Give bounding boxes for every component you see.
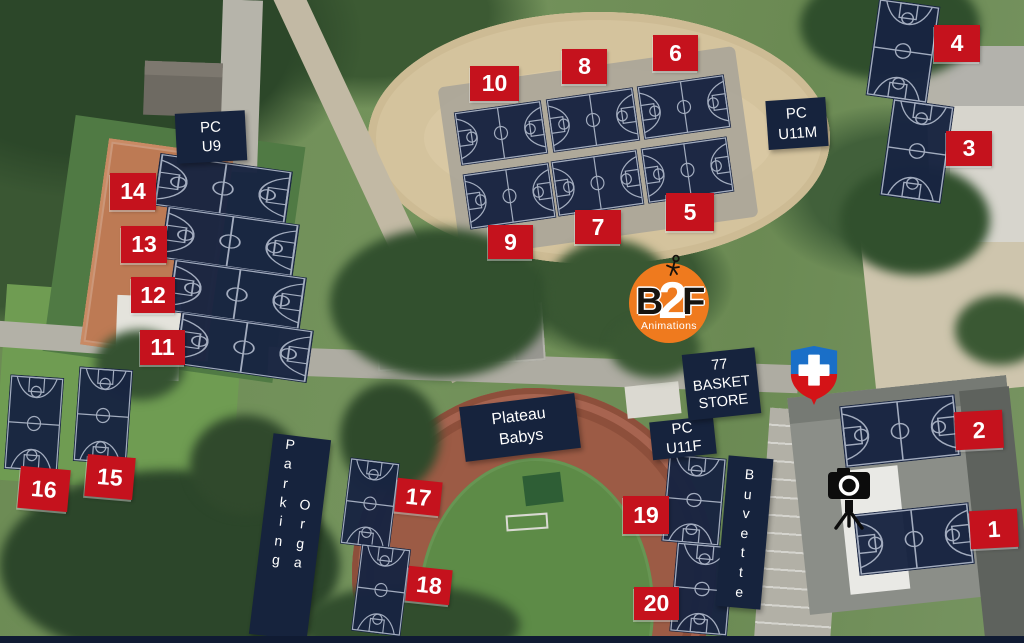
zone-basket-store: 77BASKETSTORE [682, 347, 761, 420]
court-number-15: 15 [84, 454, 135, 500]
field-shed [522, 472, 563, 506]
court-number-16: 16 [17, 466, 70, 512]
zone-pc-u9: PCU9 [175, 110, 248, 164]
court-number-8: 8 [562, 49, 607, 84]
b2f-logo-word: B2F [627, 271, 711, 323]
court-number-4: 4 [934, 25, 980, 62]
court-18 [351, 543, 411, 636]
court-number-18: 18 [405, 566, 452, 605]
court-9 [463, 162, 557, 230]
court-number-6: 6 [653, 35, 698, 71]
court-number-14: 14 [110, 173, 156, 210]
court-number-13: 13 [121, 226, 167, 263]
court-number-9: 9 [488, 225, 533, 259]
zone-pc-u11m: PCU11M [765, 97, 828, 150]
court-17 [340, 457, 400, 549]
court-2 [839, 394, 961, 468]
building-field-corner [624, 381, 681, 418]
zone-parking-orga-text: O r g a [289, 495, 314, 574]
camera-tripod-icon [822, 464, 876, 532]
court-number-10: 10 [470, 66, 519, 101]
court-7 [551, 149, 645, 217]
court-number-11: 11 [140, 330, 185, 365]
b2f-letter-b: B [636, 281, 660, 323]
court-19 [661, 454, 726, 547]
court-number-12: 12 [131, 277, 175, 313]
b2f-logo: B2F Animations [627, 257, 711, 345]
court-number-20: 20 [634, 587, 679, 620]
court-15 [73, 366, 133, 465]
court-number-5: 5 [666, 193, 714, 231]
court-16 [4, 374, 64, 473]
first-aid-icon [786, 344, 842, 406]
court-number-19: 19 [623, 496, 669, 534]
court-number-17: 17 [394, 478, 442, 517]
zone-pc-u11f: PCU11F [649, 416, 717, 460]
zone-pc-u11m-text: U11M [767, 121, 828, 145]
court-number-3: 3 [946, 131, 992, 166]
court-number-7: 7 [575, 210, 621, 244]
zone-buvette-text: B u v e t t e [730, 465, 758, 603]
court-number-1: 1 [969, 509, 1019, 549]
b2f-letter-f: F [682, 281, 702, 323]
zone-pc-u9-text: U9 [176, 135, 247, 158]
bottom-bar [0, 636, 1024, 643]
stick-figure-icon [663, 254, 687, 278]
b2f-logo-subtitle: Animations [627, 320, 711, 332]
field-goal [505, 513, 548, 532]
site-map: PCU9PCU11MPCU11F77BASKETSTOREPlateauBaby… [0, 0, 1024, 643]
court-number-2: 2 [954, 410, 1004, 450]
house-top-left [143, 61, 223, 118]
